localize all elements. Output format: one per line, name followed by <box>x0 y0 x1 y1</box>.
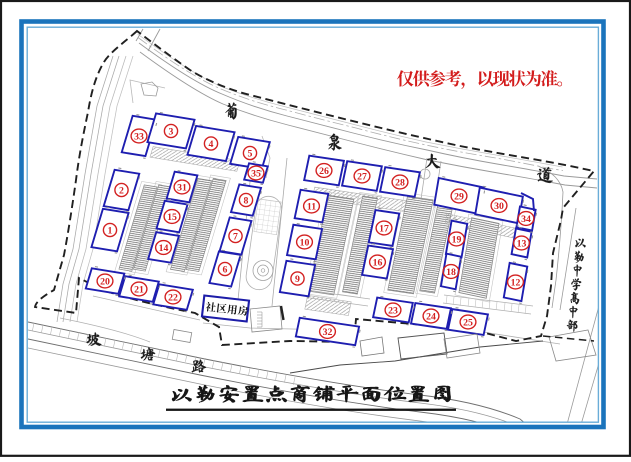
svg-text:27: 27 <box>357 172 367 183</box>
svg-text:26: 26 <box>319 166 329 177</box>
svg-text:4: 4 <box>209 139 214 150</box>
svg-text:24: 24 <box>426 312 436 323</box>
svg-text:3: 3 <box>169 127 174 138</box>
svg-text:25: 25 <box>463 318 473 329</box>
svg-text:21: 21 <box>134 285 144 296</box>
svg-text:17: 17 <box>379 224 389 235</box>
svg-text:34: 34 <box>521 214 531 225</box>
svg-text:30: 30 <box>494 201 504 212</box>
svg-text:35: 35 <box>251 169 261 180</box>
svg-text:1: 1 <box>108 226 113 237</box>
svg-text:12: 12 <box>511 278 521 289</box>
svg-text:18: 18 <box>446 267 456 278</box>
svg-text:19: 19 <box>452 235 462 246</box>
svg-text:32: 32 <box>323 327 333 338</box>
svg-text:5: 5 <box>248 149 253 160</box>
svg-text:29: 29 <box>454 192 464 203</box>
svg-text:13: 13 <box>517 239 527 250</box>
svg-text:9: 9 <box>295 274 300 285</box>
svg-text:7: 7 <box>233 232 238 243</box>
svg-text:2: 2 <box>119 186 124 197</box>
svg-text:10: 10 <box>300 238 310 249</box>
svg-text:20: 20 <box>100 277 110 288</box>
svg-text:6: 6 <box>223 265 228 276</box>
svg-text:22: 22 <box>168 293 178 304</box>
svg-text:11: 11 <box>307 202 316 213</box>
svg-text:28: 28 <box>395 178 405 189</box>
svg-text:31: 31 <box>177 183 187 194</box>
svg-text:15: 15 <box>167 212 177 223</box>
svg-text:16: 16 <box>373 258 383 269</box>
svg-text:23: 23 <box>388 306 398 317</box>
svg-text:33: 33 <box>134 132 144 143</box>
svg-text:14: 14 <box>159 243 169 254</box>
svg-text:8: 8 <box>244 196 249 207</box>
